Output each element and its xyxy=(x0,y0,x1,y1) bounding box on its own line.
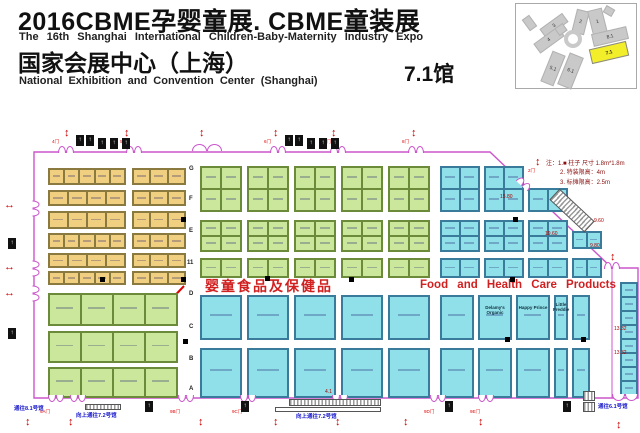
gate-opening xyxy=(430,395,446,402)
booth-cell xyxy=(268,167,288,189)
booth-cell xyxy=(389,259,409,277)
booth-cell xyxy=(248,189,268,211)
booth-block xyxy=(48,211,126,229)
entrance-arrow-icon: ↕ xyxy=(403,417,409,428)
entrance-arrow-icon: ↕ xyxy=(273,128,279,139)
booth-cell xyxy=(409,259,429,277)
booth-block xyxy=(48,331,178,363)
gate-label: 6门 xyxy=(264,139,271,145)
gate-opening xyxy=(478,395,494,402)
dimension-label: 13.32 xyxy=(614,326,627,332)
booth-cell xyxy=(529,236,548,251)
booth-block xyxy=(388,258,430,278)
facility-icon: ↑ xyxy=(145,401,153,412)
exit-direction-label: 向上通往7.2号馆 xyxy=(76,411,117,419)
aisle-row-label: B xyxy=(189,356,193,362)
booth-cell xyxy=(168,169,185,184)
booth-cell xyxy=(342,349,382,397)
booth-cell xyxy=(573,296,589,339)
facility-icon: ↑ xyxy=(98,138,106,149)
gate-arc xyxy=(178,395,186,402)
booth-cell xyxy=(362,236,382,251)
booth-name-label: Little Freddie xyxy=(553,302,569,313)
exit-direction-label: 通往6.1号馆 xyxy=(598,402,628,410)
booth-cell xyxy=(548,236,567,251)
booth-cell xyxy=(460,167,479,189)
booth-cell xyxy=(460,259,479,277)
booth-block xyxy=(132,233,186,249)
entrance-arrow-icon: ↔ xyxy=(4,262,15,273)
booth-cell xyxy=(145,332,177,362)
gate-arc xyxy=(416,146,424,153)
booth-cell xyxy=(113,332,145,362)
zone-label-food-en: Food and Health Care Products xyxy=(420,279,616,291)
booth-cell xyxy=(113,368,145,397)
facility-icon: ↑ xyxy=(331,138,339,149)
booth-block xyxy=(294,166,336,212)
booth-cell xyxy=(362,189,382,211)
entrance-arrow-icon: ↕ xyxy=(535,157,541,168)
booth-cell xyxy=(113,294,145,325)
booth-cell xyxy=(389,236,409,251)
booth-cell xyxy=(145,368,177,397)
entrance-arrow-icon: ↕ xyxy=(411,128,417,139)
booth-cell xyxy=(268,221,288,236)
booth-cell xyxy=(587,259,601,277)
aisle-row-label: D xyxy=(189,291,193,297)
booth-block xyxy=(294,295,336,340)
booth-cell xyxy=(248,349,288,397)
booth-cell xyxy=(342,189,362,211)
gate-arc xyxy=(56,395,64,402)
booth-cell xyxy=(110,272,125,284)
escalator-icon xyxy=(85,404,121,410)
facility-icon: ↑ xyxy=(319,138,327,149)
booth-cell xyxy=(460,189,479,211)
gate-label: 9B门 xyxy=(170,409,180,415)
gate-opening xyxy=(604,262,620,269)
booth-cell xyxy=(133,234,150,248)
booth-cell xyxy=(64,234,79,248)
booth-block xyxy=(572,258,602,278)
booth-cell xyxy=(49,332,81,362)
booth-cell xyxy=(150,234,167,248)
booth-cell xyxy=(201,167,221,189)
booth-cell xyxy=(485,236,504,251)
gate-arc xyxy=(58,146,66,153)
floor-plan: 婴童食品及保健品 Food and Health Care Products ↕… xyxy=(0,0,640,433)
booth-cell xyxy=(49,294,81,325)
booth-cell xyxy=(621,381,637,395)
booth-block xyxy=(516,348,550,398)
booth-block xyxy=(200,258,242,278)
gate-label: 8门 xyxy=(402,139,409,145)
booth-cell xyxy=(517,349,549,397)
booth-name-label: Delamy's Organic xyxy=(478,305,512,316)
facility-icon: ↑ xyxy=(295,135,303,146)
booth-block xyxy=(48,168,126,185)
entrance-arrow-icon: ↕ xyxy=(478,417,484,428)
booth-cell xyxy=(79,169,94,184)
facility-icon: ↑ xyxy=(8,328,16,339)
booth-cell xyxy=(49,368,81,397)
booth-cell xyxy=(248,221,268,236)
booth-cell xyxy=(389,167,409,189)
booth-cell xyxy=(64,272,79,284)
gate-arc xyxy=(33,209,40,217)
facility-icon: ↑ xyxy=(86,135,94,146)
booth-cell xyxy=(133,191,150,205)
facility-icon: ↑ xyxy=(307,138,315,149)
booth-cell xyxy=(150,272,167,284)
gate-opening xyxy=(33,286,40,302)
facility-icon: ↑ xyxy=(445,401,453,412)
booth-cell xyxy=(268,236,288,251)
booth-cell xyxy=(133,169,150,184)
booth-cell xyxy=(79,234,94,248)
gate-arc xyxy=(66,146,74,153)
booth-cell xyxy=(106,212,125,228)
booth-cell xyxy=(389,349,429,397)
booth-block xyxy=(484,220,524,252)
booth-cell xyxy=(201,221,221,236)
booth-cell xyxy=(529,189,548,211)
booth-cell xyxy=(460,236,479,251)
booth-cell xyxy=(49,169,64,184)
booth-cell xyxy=(441,349,473,397)
booth-cell xyxy=(409,167,429,189)
booth-block xyxy=(48,271,126,285)
booth-block xyxy=(200,348,242,398)
booth-block xyxy=(341,258,383,278)
booth-block xyxy=(200,295,242,340)
booth-block xyxy=(48,233,126,249)
pillar-marker xyxy=(265,276,270,281)
booth-cell xyxy=(389,296,429,339)
aisle-row-label: C xyxy=(189,324,193,330)
booth-cell xyxy=(150,212,167,228)
booth-cell xyxy=(68,191,87,205)
booth-cell xyxy=(268,259,288,277)
booth-cell xyxy=(79,272,94,284)
booth-cell xyxy=(95,169,110,184)
entrance-arrow-icon: ↕ xyxy=(68,417,74,428)
booth-block xyxy=(132,211,186,229)
booth-cell xyxy=(201,349,241,397)
booth-cell xyxy=(621,297,637,311)
booth-cell xyxy=(441,221,460,236)
gate-opening xyxy=(612,394,638,401)
gate-opening xyxy=(58,146,74,153)
booth-cell xyxy=(517,296,549,339)
booth-cell xyxy=(110,169,125,184)
gate-arc xyxy=(134,146,142,153)
booth-cell xyxy=(295,189,315,211)
booth-cell xyxy=(150,169,167,184)
booth-cell xyxy=(49,272,64,284)
booth-block xyxy=(48,293,178,326)
entrance-arrow-icon: ↕ xyxy=(64,128,70,139)
gate-arc xyxy=(430,395,438,402)
booth-cell xyxy=(441,167,460,189)
escalator-icon xyxy=(289,399,381,406)
booth-cell xyxy=(295,167,315,189)
gate-opening xyxy=(70,395,86,402)
gate-arc xyxy=(70,395,78,402)
booth-cell xyxy=(268,189,288,211)
gate-opening xyxy=(48,395,64,402)
gate-opening xyxy=(33,201,40,217)
booth-block xyxy=(48,367,178,398)
gate-label: 2门 xyxy=(528,168,535,174)
booth-cell xyxy=(342,236,362,251)
pillar-marker xyxy=(513,217,518,222)
gate-arc xyxy=(270,146,278,153)
booth-cell xyxy=(479,349,511,397)
booth-cell xyxy=(362,221,382,236)
gate-arc xyxy=(78,395,86,402)
booth-cell xyxy=(221,167,241,189)
booth-cell xyxy=(621,311,637,325)
gate-arc xyxy=(278,146,286,153)
booth-cell xyxy=(221,259,241,277)
booth-cell xyxy=(315,259,335,277)
booth-cell xyxy=(485,259,504,277)
booth-block xyxy=(247,295,289,340)
booth-block xyxy=(484,258,524,278)
booth-cell xyxy=(504,236,523,251)
escalator-icon xyxy=(583,391,595,401)
booth-cell xyxy=(573,232,587,248)
booth-block xyxy=(620,282,638,396)
gate-arc xyxy=(612,394,625,401)
booth-cell xyxy=(133,272,150,284)
booth-block xyxy=(132,271,186,285)
booth-cell xyxy=(315,236,335,251)
booth-cell xyxy=(201,236,221,251)
booth-block xyxy=(440,166,480,212)
dimension-label: 4.1 xyxy=(325,389,332,395)
gate-arc xyxy=(186,395,194,402)
booth-block xyxy=(132,253,186,268)
booth-block xyxy=(388,166,430,212)
booth-cell xyxy=(221,189,241,211)
booth-block xyxy=(247,258,289,278)
booth-block xyxy=(247,166,289,212)
gate-arc xyxy=(33,201,40,209)
pillar-marker xyxy=(510,277,515,282)
aisle-row-label: A xyxy=(189,386,193,392)
booth-block xyxy=(132,168,186,185)
booth-cell xyxy=(295,296,335,339)
exit-direction-label: 通往8.1号馆 xyxy=(14,404,44,412)
booth-cell xyxy=(362,167,382,189)
booth-cell xyxy=(409,221,429,236)
booth-cell xyxy=(315,221,335,236)
pillar-marker xyxy=(181,277,186,282)
booth-cell xyxy=(68,212,87,228)
booth-cell xyxy=(504,189,523,211)
gate-opening xyxy=(33,261,40,277)
booth-cell xyxy=(479,296,511,339)
booth-cell xyxy=(87,191,106,205)
booth-cell xyxy=(389,189,409,211)
booth-cell xyxy=(504,259,523,277)
booth-cell xyxy=(106,191,125,205)
booth-cell xyxy=(81,294,113,325)
booth-cell xyxy=(389,221,409,236)
booth-cell xyxy=(248,167,268,189)
entrance-arrow-icon: ↕ xyxy=(616,420,622,431)
booth-cell xyxy=(573,349,589,397)
booth-block xyxy=(440,348,474,398)
booth-cell xyxy=(133,212,150,228)
dimension-label: 9.60 xyxy=(594,218,604,224)
entrance-arrow-icon: ↕ xyxy=(273,417,279,428)
booth-block xyxy=(554,348,568,398)
entrance-arrow-icon: ↕ xyxy=(25,417,31,428)
booth-cell xyxy=(315,189,335,211)
booth-block xyxy=(132,190,186,206)
booth-cell xyxy=(315,167,335,189)
gate-opening xyxy=(270,146,286,153)
gate-arc xyxy=(33,261,40,269)
booth-cell xyxy=(555,349,567,397)
escalator-icon xyxy=(583,402,595,412)
booth-block xyxy=(200,166,242,212)
booth-cell xyxy=(248,296,288,339)
booth-cell xyxy=(133,254,150,267)
gate-label: 4门 xyxy=(52,139,59,145)
booth-cell xyxy=(87,254,106,267)
dimension-label: 15.80 xyxy=(500,194,513,200)
gate-arc xyxy=(207,144,222,151)
gate-arc xyxy=(625,394,638,401)
gate-arc xyxy=(408,146,416,153)
gate-label: 9D门 xyxy=(424,409,434,415)
gate-label: 9E门 xyxy=(470,409,480,415)
booth-name-label: Happy Prince xyxy=(518,305,548,310)
booth-cell xyxy=(441,189,460,211)
booth-cell xyxy=(441,259,460,277)
booth-cell xyxy=(150,254,167,267)
pillar-marker xyxy=(183,339,188,344)
booth-cell xyxy=(441,296,473,339)
booth-cell xyxy=(150,191,167,205)
gate-arc xyxy=(478,395,486,402)
booth-block xyxy=(247,348,289,398)
booth-block xyxy=(341,166,383,212)
entrance-arrow-icon: ↔ xyxy=(4,200,15,211)
pillar-marker xyxy=(581,337,586,342)
booth-block xyxy=(341,295,383,340)
booth-cell xyxy=(106,254,125,267)
booth-block xyxy=(478,348,512,398)
facility-icon: ↑ xyxy=(563,401,571,412)
booth-cell xyxy=(201,189,221,211)
aisle-row-label: F xyxy=(189,196,193,202)
booth-block xyxy=(572,295,590,340)
booth-cell xyxy=(548,259,567,277)
booth-cell xyxy=(485,221,504,236)
facility-icon: ↑ xyxy=(241,401,249,412)
booth-block xyxy=(528,258,568,278)
booth-cell xyxy=(295,221,315,236)
gate-arc xyxy=(338,146,346,153)
facility-icon: ↑ xyxy=(285,135,293,146)
booth-cell xyxy=(95,234,110,248)
booth-cell xyxy=(168,234,185,248)
booth-cell xyxy=(64,169,79,184)
dimension-label: 13.32 xyxy=(614,350,627,356)
booth-cell xyxy=(621,367,637,381)
pillar-marker xyxy=(505,337,510,342)
gate-arc xyxy=(192,144,207,151)
expo-floorplan-page: { "header": { "title_zh": "2016CBME孕婴童展.… xyxy=(0,0,640,433)
booth-cell xyxy=(81,368,113,397)
booth-cell xyxy=(485,167,504,189)
booth-block xyxy=(388,295,430,340)
booth-cell xyxy=(81,332,113,362)
booth-block xyxy=(440,295,474,340)
booth-cell xyxy=(460,221,479,236)
booth-block xyxy=(478,295,512,340)
booth-cell xyxy=(49,234,64,248)
booth-block xyxy=(294,258,336,278)
booth-cell xyxy=(221,221,241,236)
booth-cell xyxy=(49,191,68,205)
booth-cell xyxy=(362,259,382,277)
booth-cell xyxy=(295,259,315,277)
facility-icon: ↑ xyxy=(122,138,130,149)
entrance-arrow-icon: ↕ xyxy=(199,128,205,139)
gate-opening xyxy=(192,144,222,151)
gate-opening xyxy=(408,146,424,153)
booth-cell xyxy=(201,259,221,277)
booth-block xyxy=(48,253,126,268)
facility-icon: ↑ xyxy=(110,138,118,149)
gate-arc xyxy=(48,395,56,402)
booth-cell xyxy=(168,254,185,267)
pillar-marker xyxy=(349,277,354,282)
booth-cell xyxy=(168,191,185,205)
booth-cell xyxy=(49,212,68,228)
aisle-row-label: E xyxy=(189,228,193,234)
entrance-arrow-icon: ↕ xyxy=(198,417,204,428)
booth-cell xyxy=(201,296,241,339)
booth-block xyxy=(440,220,480,252)
facility-icon: ↑ xyxy=(8,238,16,249)
gate-arc xyxy=(612,262,620,269)
facility-icon: ↑ xyxy=(76,135,84,146)
aisle-row-label: G xyxy=(189,166,194,172)
exit-direction-label: 向上通往7.2号馆 xyxy=(296,412,337,420)
booth-cell xyxy=(529,259,548,277)
booth-block xyxy=(388,348,430,398)
booth-cell xyxy=(145,294,177,325)
booth-cell xyxy=(49,254,68,267)
booth-cell xyxy=(621,283,637,297)
booth-cell xyxy=(221,236,241,251)
booth-cell xyxy=(409,189,429,211)
aisle-row-label: 11 xyxy=(187,260,193,266)
gate-arc xyxy=(604,262,612,269)
gate-arc xyxy=(486,395,494,402)
booth-cell xyxy=(342,259,362,277)
entrance-arrow-icon: ↔ xyxy=(4,288,15,299)
booth-cell xyxy=(68,254,87,267)
booth-cell xyxy=(441,236,460,251)
